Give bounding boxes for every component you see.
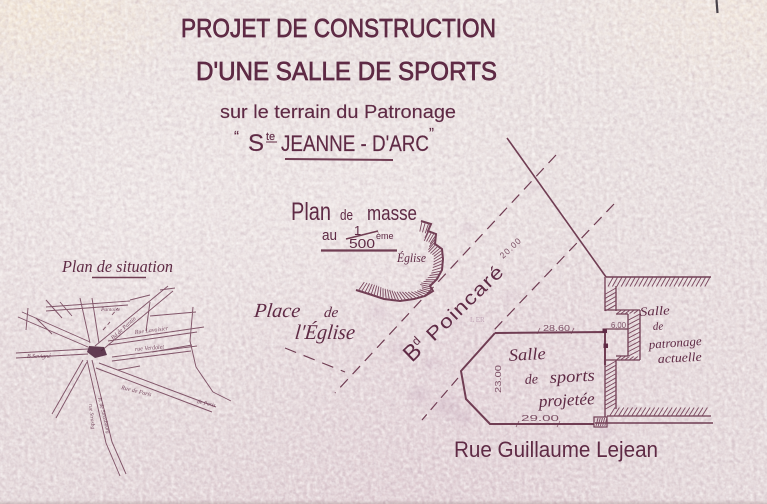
svg-text:Pantoise: Pantoise (100, 307, 121, 313)
svg-text:de: de (340, 207, 353, 224)
svg-text:Salle: Salle (639, 303, 670, 319)
svg-text:te: te (266, 131, 275, 143)
svg-text:500: 500 (349, 236, 375, 251)
svg-text:Salle: Salle (508, 344, 546, 365)
svg-text:sur le terrain du Patronage: sur le terrain du Patronage (220, 102, 456, 122)
svg-text:projetée: projetée (537, 389, 595, 411)
svg-text:l'Église: l'Église (294, 320, 357, 344)
svg-text:S: S (248, 130, 264, 157)
svg-text:de: de (653, 320, 664, 333)
svg-text:Plan de situation: Plan de situation (61, 257, 173, 276)
svg-text:28.60: 28.60 (543, 324, 571, 333)
svg-text:23.00: 23.00 (494, 364, 503, 393)
svg-text:sports: sports (549, 366, 595, 387)
svg-text:de: de (524, 372, 538, 388)
svg-text:de: de (323, 305, 339, 321)
svg-text:”: ” (429, 125, 434, 142)
svg-text:au: au (322, 227, 337, 244)
svg-text:ème: ème (376, 231, 394, 241)
svg-text:Place: Place (252, 300, 301, 322)
svg-text:JEANNE - D'ARC: JEANNE - D'ARC (281, 131, 429, 156)
svg-text:B.Sevigné: B.Sevigné (27, 354, 51, 360)
svg-text:Église: Église (396, 250, 426, 265)
svg-text:actuelle: actuelle (657, 350, 702, 366)
svg-text:L ER: L ER (470, 316, 485, 324)
svg-text:masse: masse (367, 203, 417, 225)
svg-text:“: “ (234, 128, 239, 145)
svg-text:D'UNE SALLE DE SPORTS: D'UNE SALLE DE SPORTS (196, 56, 497, 86)
svg-text:Rue Guillaume Lejean: Rue Guillaume Lejean (454, 437, 658, 462)
svg-text:29.00: 29.00 (521, 413, 559, 423)
svg-text:PROJET DE CONSTRUCTION: PROJET DE CONSTRUCTION (181, 13, 496, 43)
svg-text:Plan: Plan (291, 198, 331, 226)
